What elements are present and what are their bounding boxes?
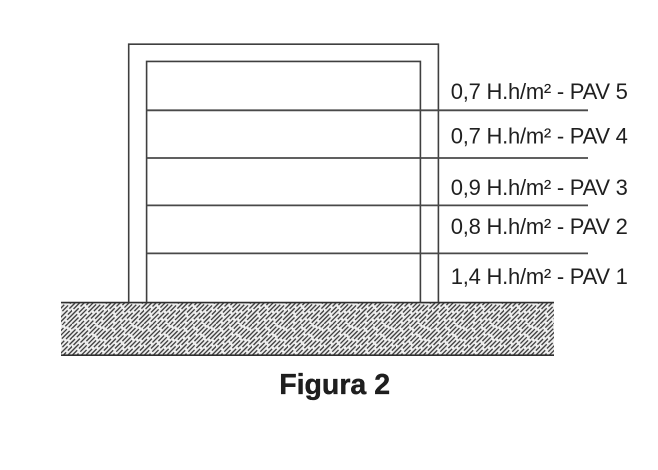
svg-text:1,4 H.h/m² - PAV 1: 1,4 H.h/m² - PAV 1 (451, 264, 628, 289)
svg-text:0,9 H.h/m² - PAV 3: 0,9 H.h/m² - PAV 3 (451, 175, 628, 200)
svg-text:0,7 H.h/m² - PAV 5: 0,7 H.h/m² - PAV 5 (451, 79, 628, 104)
svg-text:Figura 2: Figura 2 (279, 369, 390, 401)
svg-text:0,8 H.h/m² - PAV 2: 0,8 H.h/m² - PAV 2 (451, 214, 628, 239)
svg-text:0,7 H.h/m² - PAV 4: 0,7 H.h/m² - PAV 4 (451, 123, 628, 148)
